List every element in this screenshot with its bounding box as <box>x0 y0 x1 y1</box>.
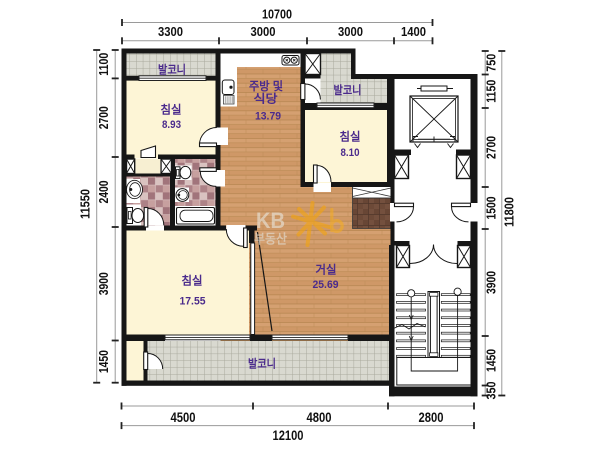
svg-text:3900: 3900 <box>97 272 111 295</box>
svg-text:10700: 10700 <box>262 8 292 22</box>
svg-text:8.93: 8.93 <box>162 119 181 131</box>
svg-text:350: 350 <box>485 382 499 400</box>
svg-text:2800: 2800 <box>419 410 444 425</box>
svg-text:11800: 11800 <box>503 197 517 227</box>
svg-text:1100: 1100 <box>97 53 111 76</box>
svg-text:3000: 3000 <box>338 25 363 39</box>
svg-text:17.55: 17.55 <box>180 296 207 308</box>
svg-text:2700: 2700 <box>485 136 499 159</box>
svg-text:3900: 3900 <box>485 271 499 294</box>
svg-text:11550: 11550 <box>79 189 93 219</box>
svg-text:25.69: 25.69 <box>313 279 339 291</box>
svg-text:부동산: 부동산 <box>254 231 287 246</box>
svg-text:1500: 1500 <box>485 197 499 220</box>
svg-text:8.10: 8.10 <box>341 147 360 159</box>
svg-text:1450: 1450 <box>97 350 111 373</box>
svg-text:3300: 3300 <box>158 25 183 39</box>
svg-text:750: 750 <box>485 54 499 72</box>
svg-text:거실: 거실 <box>316 263 337 277</box>
svg-text:2700: 2700 <box>97 106 111 129</box>
svg-text:3000: 3000 <box>251 25 276 39</box>
svg-text:침실: 침실 <box>182 274 203 288</box>
svg-text:침실: 침실 <box>340 130 361 144</box>
svg-text:식당: 식당 <box>254 92 278 106</box>
svg-text:2400: 2400 <box>97 181 111 204</box>
svg-text:12100: 12100 <box>273 428 304 443</box>
svg-text:4500: 4500 <box>171 410 196 425</box>
svg-text:침실: 침실 <box>161 103 182 117</box>
svg-text:1150: 1150 <box>485 80 499 103</box>
svg-text:KB: KB <box>256 208 285 233</box>
svg-text:4800: 4800 <box>307 410 332 425</box>
svg-text:발코니: 발코니 <box>158 63 186 77</box>
svg-text:발코니: 발코니 <box>334 83 362 97</box>
svg-text:발코니: 발코니 <box>248 357 276 371</box>
svg-text:1400: 1400 <box>401 25 426 39</box>
svg-text:1450: 1450 <box>485 349 499 372</box>
svg-text:13.79: 13.79 <box>255 110 281 122</box>
svg-text:주방 및: 주방 및 <box>249 79 283 93</box>
